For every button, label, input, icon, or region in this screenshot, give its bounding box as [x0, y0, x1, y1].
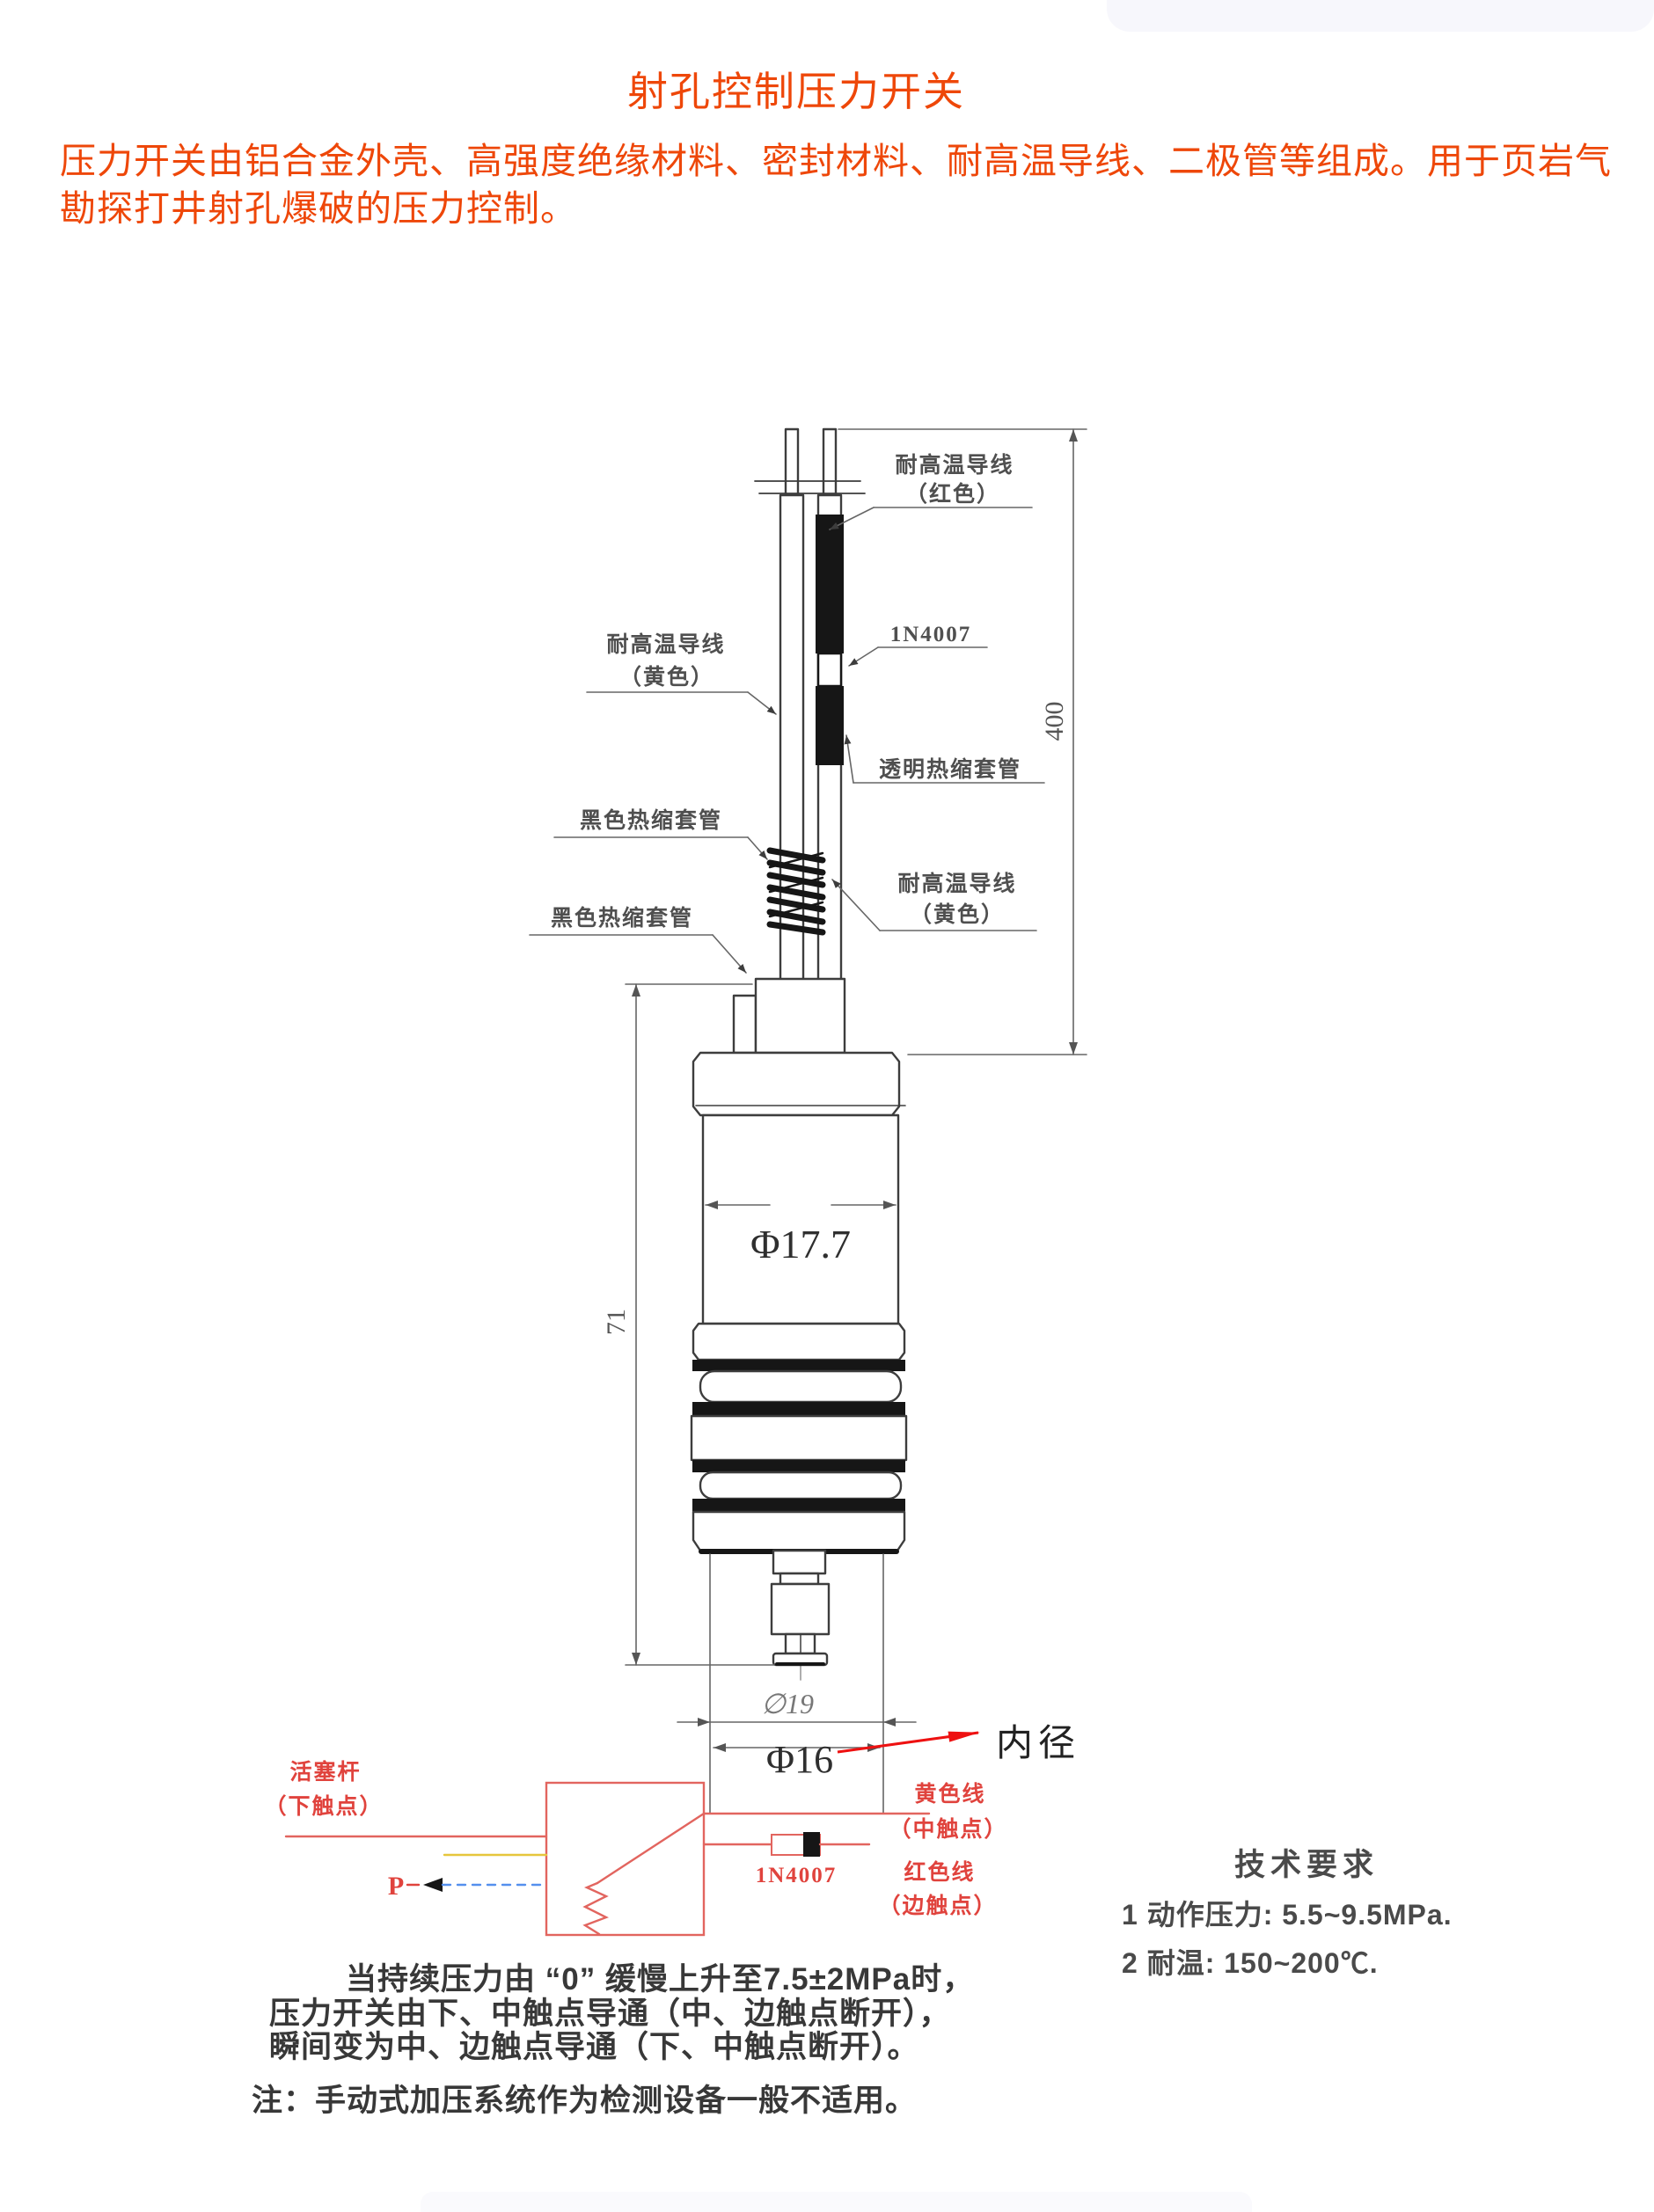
neck — [756, 979, 845, 1053]
dim-inner-diameter: Φ16 — [766, 1738, 833, 1781]
scan-artifact-bottom — [421, 2192, 1252, 2212]
plunger-step-1 — [773, 1551, 825, 1573]
label-yellow-wire-2: （中触点） — [889, 1816, 1007, 1842]
description-note: 注：手动式加压系统作为检测设备一般不适用。 — [252, 2076, 917, 2121]
label-piston-2: （下触点） — [264, 1793, 383, 1819]
label-black-tube-upper: 黑色热缩套管 — [554, 807, 767, 859]
piston-plunger — [772, 1551, 829, 1665]
svg-text:黑色热缩套管: 黑色热缩套管 — [551, 905, 693, 931]
label-diode: 1N4007 — [849, 623, 987, 666]
black-sleeve-lower — [816, 686, 844, 765]
plunger-step-2 — [780, 1573, 818, 1584]
collar — [693, 1324, 904, 1360]
svg-text:（黄色）: （黄色） — [619, 664, 714, 690]
switch-housing — [546, 1783, 704, 1935]
dim-71: 71 — [602, 1309, 631, 1335]
label-wire-yellow-left: 耐高温导线 （黄色） — [587, 631, 776, 714]
dim-400: 400 — [1040, 702, 1069, 741]
intro-paragraph: 压力开关由铝合金外壳、高强度绝缘材料、密封材料、耐高温导线、二极管等组成。用于页… — [60, 137, 1615, 232]
black-sleeve-upper — [816, 515, 844, 653]
wire-tip-left — [786, 429, 798, 495]
oring-stack — [692, 1360, 906, 1551]
tech-requirement-1: 1 动作压力: 5.5~9.5MPa. — [1122, 1893, 1518, 1933]
switch-lever — [597, 1814, 704, 1883]
technical-drawing: 400 — [132, 387, 1601, 1944]
lead-wires — [755, 429, 865, 1053]
svg-text:（红色）: （红色） — [905, 481, 1000, 507]
tech-requirements: 技术要求 1 动作压力: 5.5~9.5MPa. 2 耐温: 150~200℃. — [1104, 1840, 1518, 1982]
label-red-wire-2: （边触点） — [878, 1893, 997, 1918]
label-piston: 活塞杆 — [289, 1759, 361, 1785]
neck-step — [734, 996, 756, 1053]
oring-band-1 — [692, 1360, 905, 1371]
svg-text:透明热缩套管: 透明热缩套管 — [879, 756, 1021, 782]
diode-body — [818, 653, 841, 686]
pressure-symbol: P — [388, 1872, 404, 1901]
svg-text:耐高温导线: 耐高温导线 — [897, 871, 1016, 896]
spring-symbol — [585, 1883, 606, 1934]
label-wire-red: 耐高温导线 （红色） — [830, 452, 1032, 529]
svg-text:耐高温导线: 耐高温导线 — [606, 631, 725, 657]
switch-schematic: 活塞杆 （下触点） P 黄色线 （中触点） 1N4007 红色线 （边触点） — [264, 1759, 1007, 1935]
bottom-collar — [693, 1512, 904, 1551]
inner-diameter-pointer — [838, 1733, 978, 1752]
tech-requirement-2: 2 耐温: 150~200℃. — [1122, 1941, 1518, 1982]
svg-text:耐高温导线: 耐高温导线 — [895, 452, 1014, 478]
label-yellow-wire: 黄色线 — [914, 1781, 985, 1807]
inner-diameter-label: 内径 — [996, 1724, 1080, 1764]
svg-text:黑色热缩套管: 黑色热缩套管 — [580, 807, 722, 833]
page-title: 射孔控制压力开关 — [0, 60, 1592, 118]
mid-section — [692, 1416, 906, 1460]
oring-band-3 — [692, 1460, 905, 1472]
main-body — [703, 1115, 898, 1324]
wire-tip-right — [823, 429, 836, 495]
groove-2 — [700, 1472, 901, 1499]
scan-artifact-top — [1107, 0, 1654, 32]
label-wire-yellow-right: 耐高温导线 （黄色） — [832, 871, 1036, 931]
tech-requirements-heading: 技术要求 — [1104, 1840, 1509, 1885]
pressure-arrow — [423, 1878, 443, 1892]
svg-text:1N4007: 1N4007 — [890, 623, 972, 646]
groove-1 — [700, 1371, 901, 1402]
dim-outer-diameter: ∅19 — [761, 1688, 814, 1719]
plunger-block — [772, 1584, 829, 1634]
svg-text:（黄色）: （黄色） — [910, 902, 1005, 927]
description-line-3: 瞬间变为中、边触点导通（下、中触点断开）。 — [269, 2022, 919, 2067]
label-black-tube-lower: 黑色热缩套管 — [530, 905, 746, 973]
oring-band-4 — [692, 1499, 905, 1512]
label-schematic-diode: 1N4007 — [756, 1864, 838, 1887]
yellow-wire — [780, 495, 803, 1053]
schematic-diode-band — [803, 1832, 820, 1857]
dim-body-diameter: Φ17.7 — [750, 1222, 851, 1267]
oring-band-2 — [692, 1402, 905, 1416]
label-red-wire: 红色线 — [904, 1859, 975, 1885]
pressure-switch-figure: 400 — [530, 429, 1087, 1814]
document-page: 射孔控制压力开关 压力开关由铝合金外壳、高强度绝缘材料、密封材料、耐高温导线、二… — [0, 0, 1654, 2212]
label-clear-tube: 透明热缩套管 — [846, 735, 1044, 783]
